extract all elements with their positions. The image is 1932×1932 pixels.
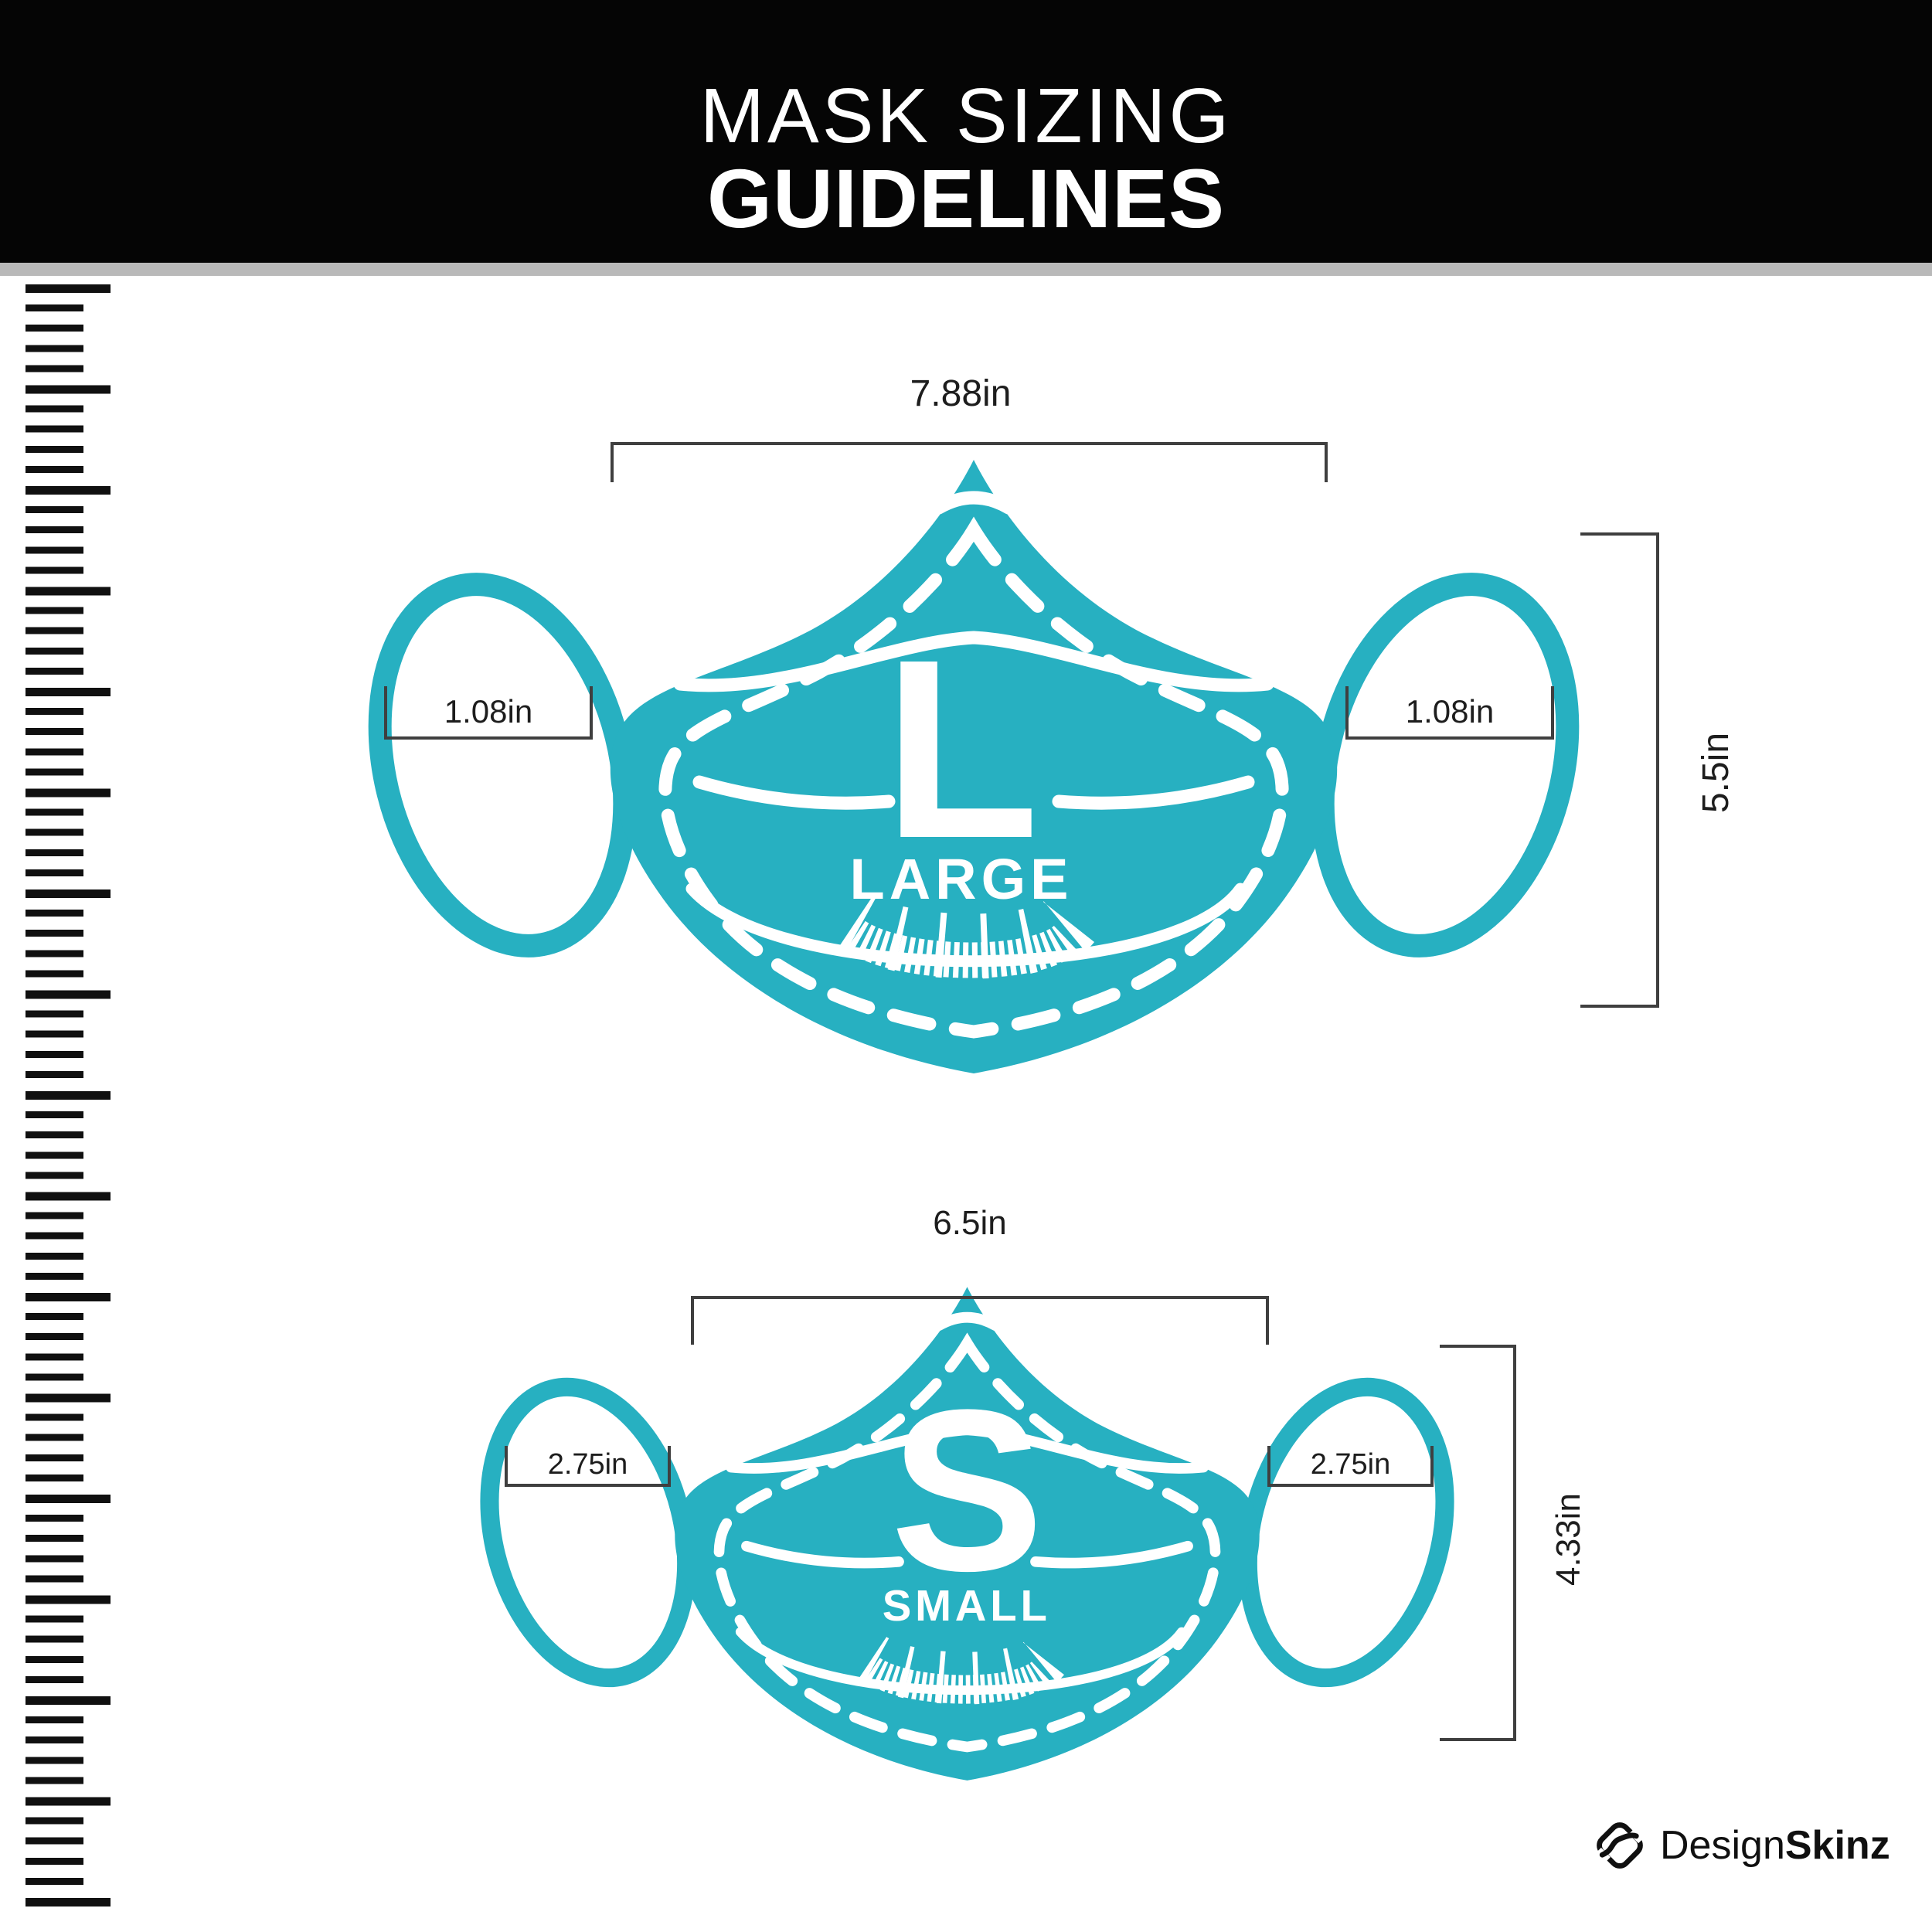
small-mask-illustration: S SMALL (470, 1281, 1464, 1791)
header-divider (0, 263, 1932, 276)
title-line-2: GUIDELINES (0, 155, 1932, 243)
brand-name: DesignSkinz (1660, 1822, 1890, 1869)
small-height-dimension-value: 4.33in (1546, 1474, 1592, 1605)
small-right-ear-dimension-value: 2.75in (1311, 1448, 1391, 1481)
ruler-graphic (26, 284, 111, 1907)
small-size-word: SMALL (883, 1581, 1051, 1630)
small-left-ear-dimension: 2.75in (505, 1446, 671, 1487)
large-left-ear-dimension: 1.08in (384, 686, 593, 740)
small-height-bracket (1440, 1345, 1516, 1741)
small-width-dimension-value: 6.5in (831, 1204, 1109, 1243)
large-height-dimension-value: 5.5in (1692, 715, 1739, 831)
infographic-page: MASK SIZING GUIDELINES L LARGE 7.88in 1.… (0, 0, 1932, 1932)
brand-name-regular: Design (1660, 1823, 1785, 1868)
small-right-ear-dimension: 2.75in (1267, 1446, 1434, 1487)
small-left-ear-dimension-value: 2.75in (548, 1448, 628, 1481)
large-right-ear-dimension: 1.08in (1345, 686, 1554, 740)
large-width-bracket (611, 442, 1328, 482)
brand-logo: DesignSkinz (1590, 1816, 1890, 1875)
page-title: MASK SIZING GUIDELINES (0, 77, 1932, 243)
large-width-dimension-value: 7.88in (806, 372, 1115, 415)
header-banner: MASK SIZING GUIDELINES (0, 0, 1932, 263)
large-size-word: LARGE (850, 847, 1073, 911)
title-line-1: MASK SIZING (0, 77, 1932, 155)
small-width-bracket (691, 1296, 1269, 1345)
large-mask-illustration: L LARGE (355, 452, 1592, 1086)
large-left-ear-dimension-value: 1.08in (444, 693, 532, 730)
large-height-bracket (1580, 532, 1659, 1008)
designskinz-icon (1590, 1816, 1649, 1875)
large-right-ear-dimension-value: 1.08in (1406, 693, 1494, 730)
ruler-major-ticks (26, 284, 111, 1907)
brand-name-bold: Skinz (1785, 1823, 1890, 1868)
